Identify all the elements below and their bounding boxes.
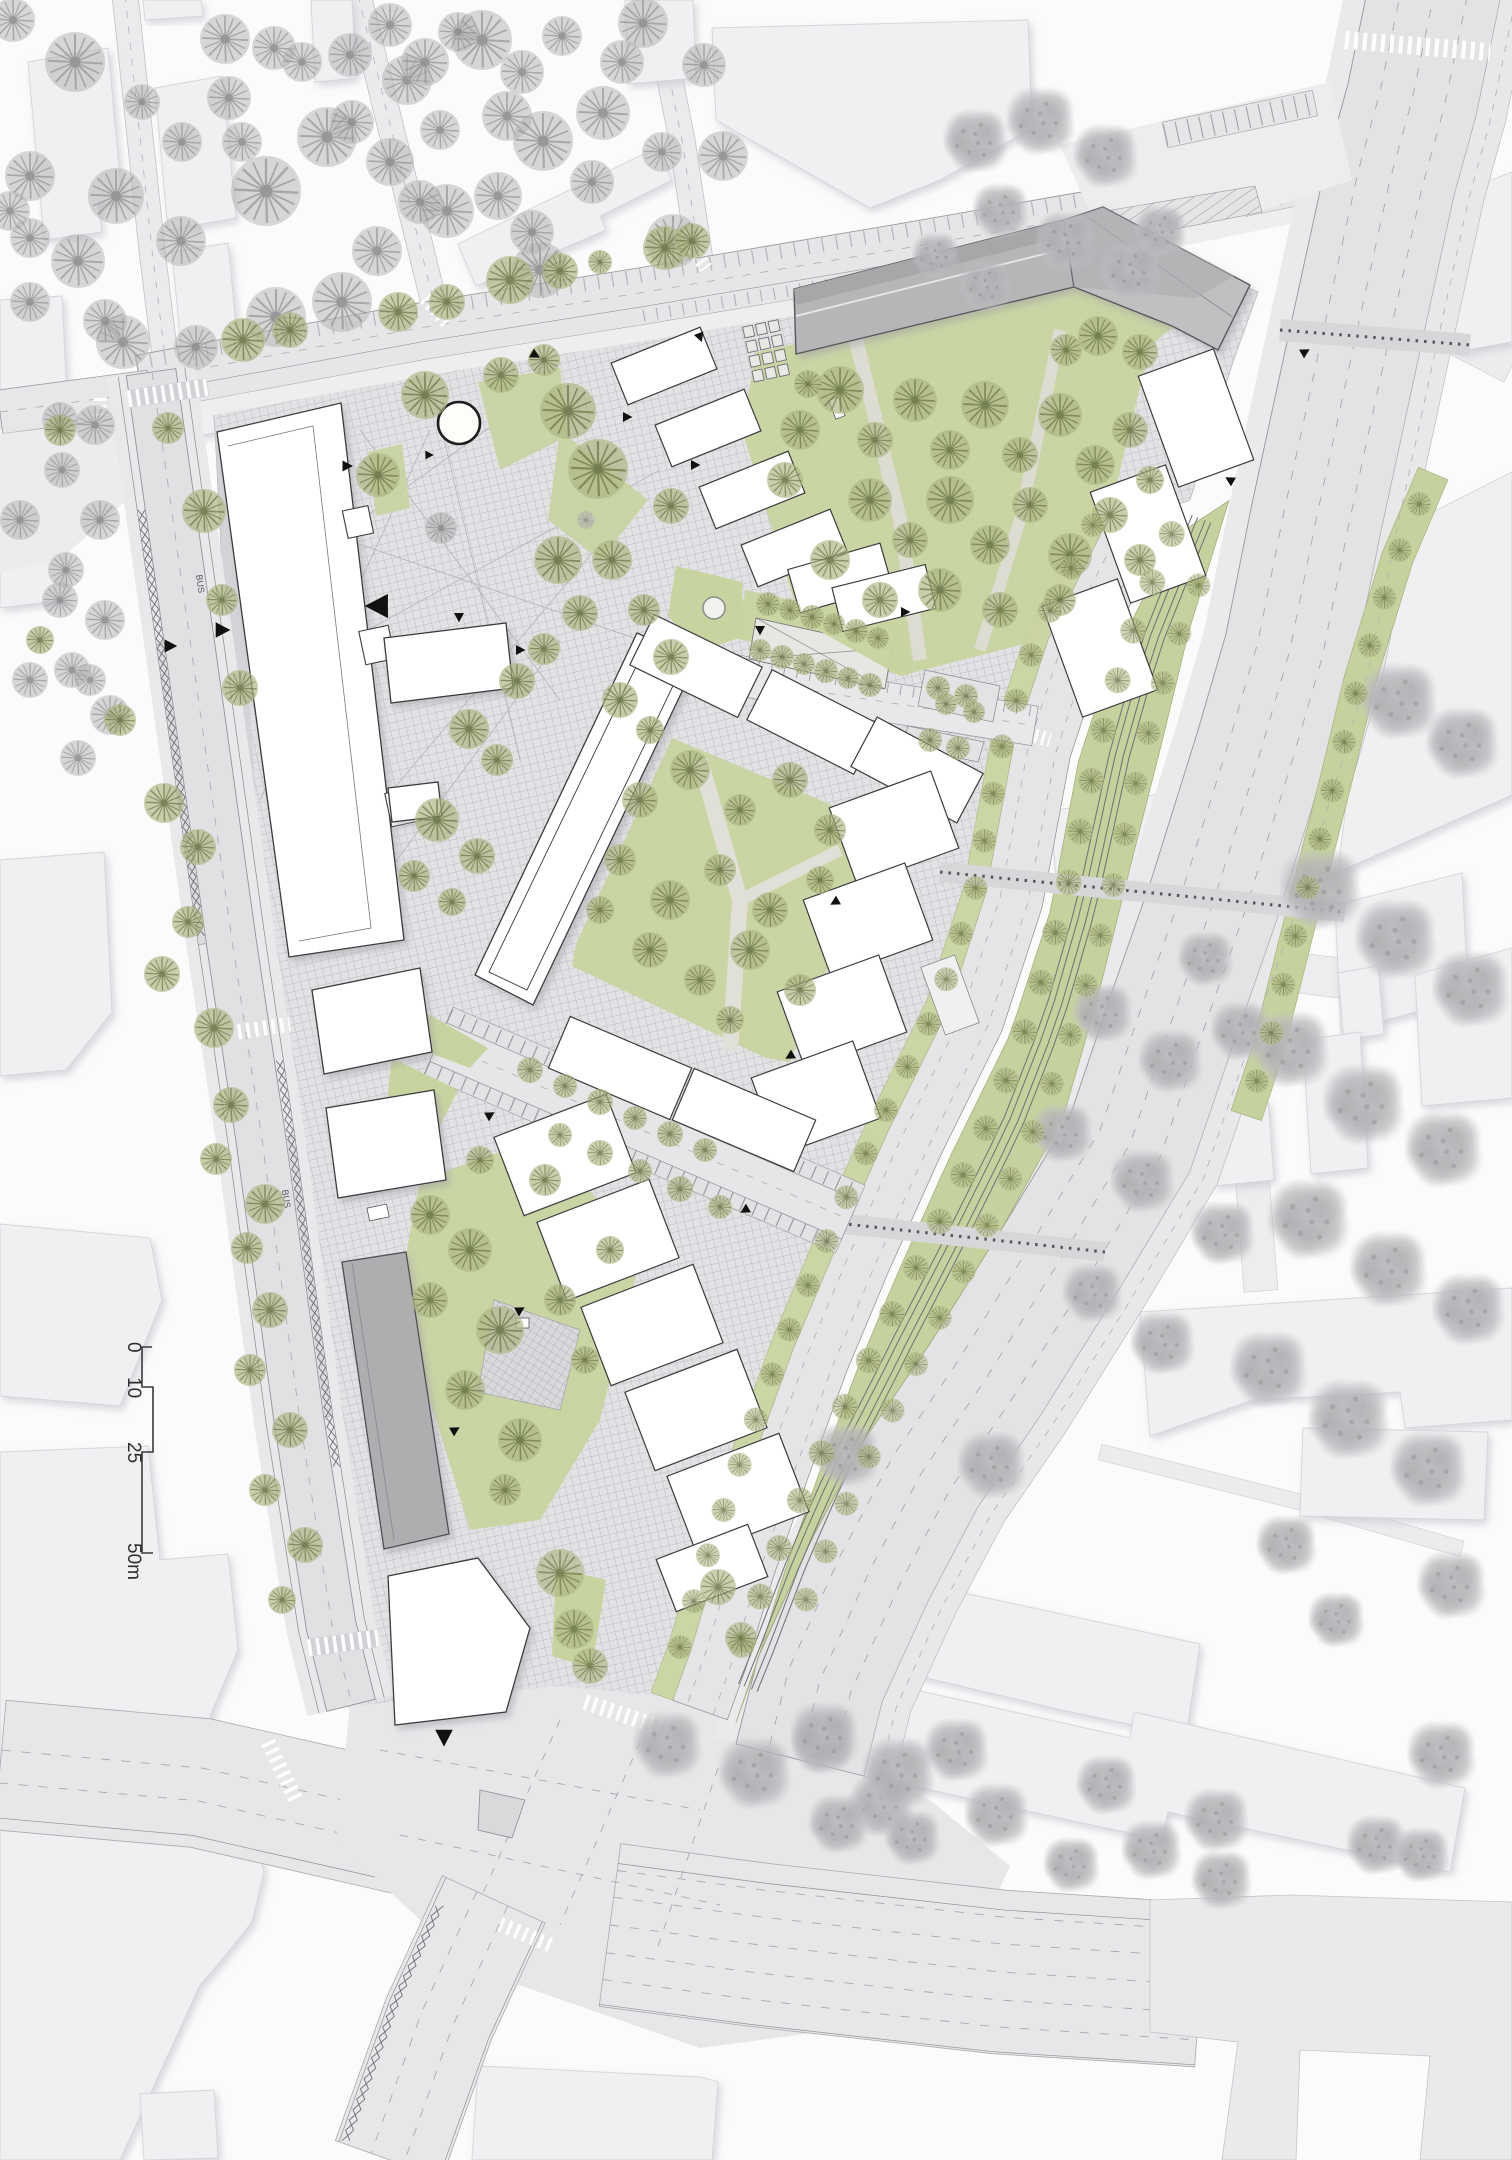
svg-text:0: 0 bbox=[123, 1342, 144, 1353]
svg-text:10: 10 bbox=[123, 1377, 144, 1398]
svg-text:50m: 50m bbox=[123, 1543, 144, 1580]
svg-text:25: 25 bbox=[123, 1442, 144, 1463]
